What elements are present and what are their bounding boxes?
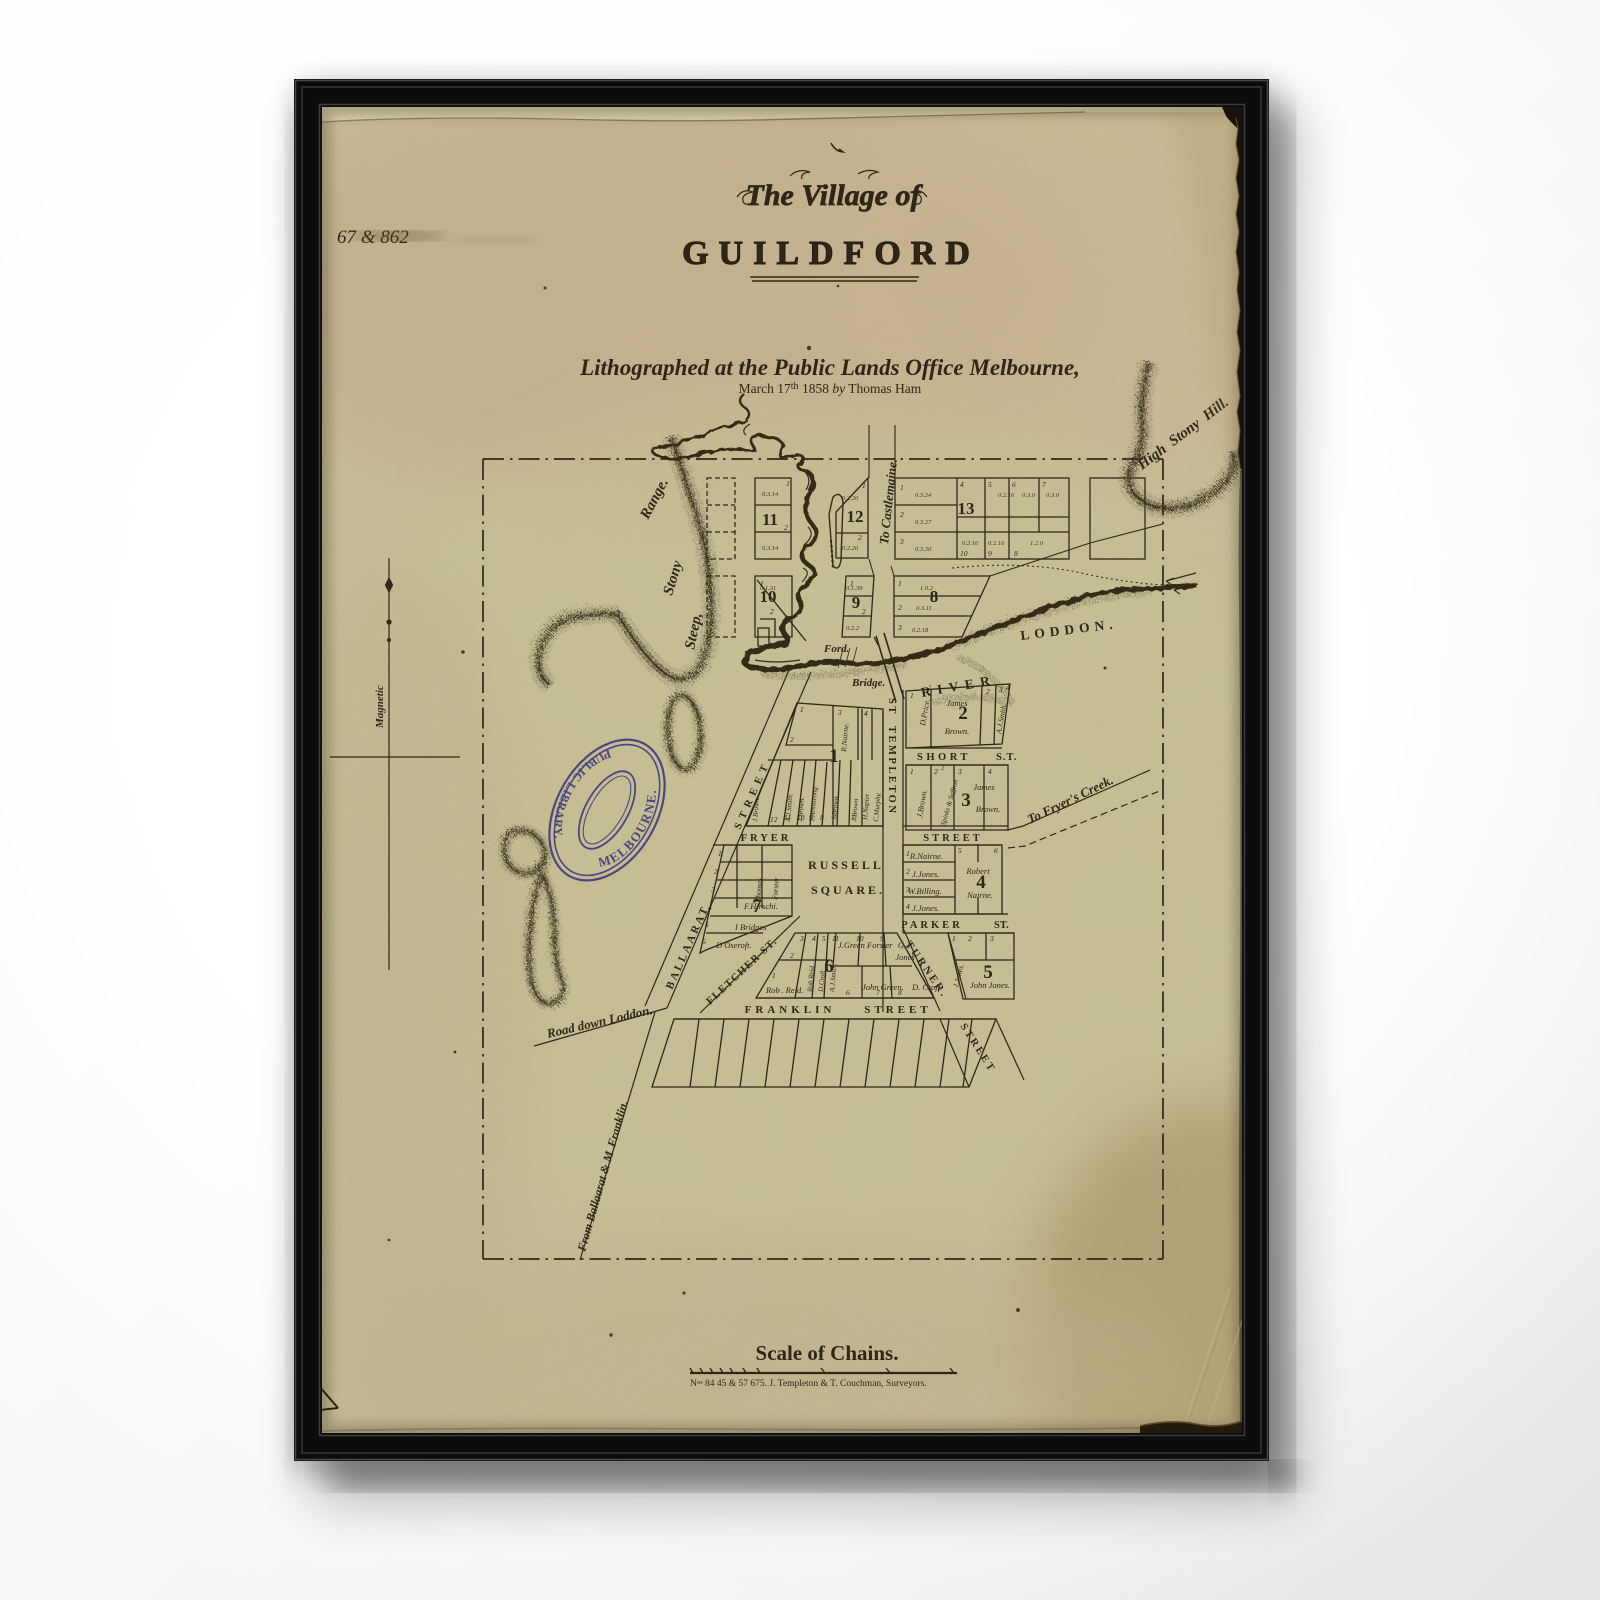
svg-text:SQUARE.: SQUARE. <box>811 883 885 897</box>
svg-text:3: 3 <box>998 685 1003 694</box>
svg-text:6: 6 <box>1012 480 1016 489</box>
svg-text:Lithographed at the Public Lan: Lithographed at the Public Lands Office … <box>579 355 1080 380</box>
svg-text:Brown.: Brown. <box>945 726 969 736</box>
svg-text:March 17th 1858 by Thomas Ham: March 17th 1858 by Thomas Ham <box>739 381 922 396</box>
svg-text:1.2.0: 1.2.0 <box>1030 540 1044 547</box>
svg-text:13: 13 <box>958 499 975 518</box>
svg-text:8: 8 <box>898 988 902 997</box>
svg-text:ST.: ST. <box>994 920 1009 931</box>
svg-text:G.J.: G.J. <box>898 940 912 950</box>
svg-text:Ford.: Ford. <box>823 643 849 655</box>
svg-text:9: 9 <box>988 549 992 558</box>
svg-text:4: 4 <box>906 902 910 911</box>
svg-text:1: 1 <box>900 483 904 492</box>
svg-text:3: 3 <box>899 537 904 546</box>
svg-text:0.3.30: 0.3.30 <box>915 546 932 553</box>
svg-text:8: 8 <box>1014 549 1018 558</box>
svg-text:2: 2 <box>934 767 938 776</box>
svg-text:RUSSELL: RUSSELL <box>808 858 884 872</box>
svg-text:4: 4 <box>864 709 868 718</box>
svg-text:2: 2 <box>900 510 904 519</box>
svg-text:12: 12 <box>847 507 864 526</box>
svg-text:1: 1 <box>760 579 764 588</box>
svg-text:5: 5 <box>958 846 962 855</box>
svg-text:D. Croft.: D. Croft. <box>911 982 942 992</box>
svg-text:7: 7 <box>832 813 836 822</box>
svg-text:7: 7 <box>1042 480 1046 489</box>
svg-text:SHORT: SHORT <box>917 752 971 763</box>
svg-text:0.3.14: 0.3.14 <box>762 491 779 498</box>
svg-text:0.3.0: 0.3.0 <box>1022 492 1036 499</box>
svg-text:0.2.2: 0.2.2 <box>846 625 860 632</box>
svg-text:10: 10 <box>960 549 968 558</box>
svg-text:F.Hirschi.: F.Hirschi. <box>743 901 778 911</box>
svg-text:3: 3 <box>799 934 804 943</box>
svg-text:1: 1 <box>862 481 866 490</box>
svg-text:2: 2 <box>906 867 910 876</box>
svg-text:0.2.20: 0.2.20 <box>842 545 859 552</box>
svg-text:1: 1 <box>772 971 776 980</box>
svg-text:3: 3 <box>897 623 902 632</box>
svg-text:11: 11 <box>762 510 778 529</box>
svg-text:5: 5 <box>705 920 709 929</box>
svg-text:11: 11 <box>784 813 791 822</box>
svg-text:2: 2 <box>968 934 972 943</box>
svg-text:1: 1 <box>952 934 956 943</box>
svg-text:James: James <box>946 698 968 708</box>
svg-text:STREET: STREET <box>923 833 982 844</box>
svg-text:11: 11 <box>832 934 839 943</box>
svg-text:1: 1 <box>910 767 914 776</box>
svg-text:0.1.39: 0.1.39 <box>846 585 863 592</box>
svg-text:4: 4 <box>812 934 816 943</box>
svg-text:4: 4 <box>988 767 992 776</box>
svg-text:TEMPLETON: TEMPLETON <box>886 726 897 815</box>
svg-text:Nairne.: Nairne. <box>966 890 993 900</box>
svg-text:1.0.2: 1.0.2 <box>920 585 934 592</box>
svg-text:0.3.11: 0.3.11 <box>916 605 932 612</box>
svg-text:2: 2 <box>862 607 866 616</box>
svg-text:2: 2 <box>986 687 990 696</box>
svg-text:6: 6 <box>852 813 856 822</box>
svg-text:W.Billing.: W.Billing. <box>908 886 942 896</box>
svg-text:ST: ST <box>886 698 897 716</box>
svg-text:10: 10 <box>797 813 805 822</box>
svg-text:I Bridges: I Bridges <box>734 922 767 932</box>
svg-text:9: 9 <box>852 593 861 612</box>
svg-text:1: 1 <box>829 746 839 767</box>
svg-text:0.2.20: 0.2.20 <box>842 495 859 502</box>
svg-text:John Jones.: John Jones. <box>970 980 1010 990</box>
svg-text:Magnetic: Magnetic <box>374 685 386 729</box>
svg-text:The Village of: The Village of <box>746 179 924 212</box>
svg-text:5: 5 <box>822 934 826 943</box>
svg-text:12: 12 <box>770 815 778 824</box>
svg-text:FRYER: FRYER <box>741 833 792 844</box>
svg-text:1: 1 <box>906 849 910 858</box>
svg-text:8: 8 <box>820 813 824 822</box>
svg-text:1: 1 <box>786 479 790 488</box>
svg-text:4: 4 <box>960 480 964 489</box>
svg-text:2: 2 <box>858 533 862 542</box>
svg-text:Brown.: Brown. <box>976 804 1000 814</box>
svg-text:3: 3 <box>961 790 971 811</box>
svg-text:R.Nairne.: R.Nairne. <box>909 851 943 861</box>
svg-text:2: 2 <box>790 735 794 744</box>
svg-text:4: 4 <box>1006 683 1010 692</box>
svg-text:6: 6 <box>702 937 706 946</box>
svg-text:9: 9 <box>809 813 813 822</box>
svg-text:PARKER: PARKER <box>901 920 963 931</box>
svg-text:Rob . Reid.: Rob . Reid. <box>765 985 803 995</box>
svg-text:0.2.16: 0.2.16 <box>962 540 979 547</box>
svg-text:Jones: Jones <box>895 952 915 962</box>
svg-text:1: 1 <box>910 691 914 700</box>
svg-text:J.Jones.: J.Jones. <box>912 869 939 879</box>
svg-text:3: 3 <box>837 708 842 717</box>
svg-text:4: 4 <box>708 903 712 912</box>
svg-text:Robert: Robert <box>965 866 990 876</box>
svg-text:J.Green Forster: J.Green Forster <box>838 940 893 950</box>
svg-text:Bridge.: Bridge. <box>851 677 885 689</box>
svg-text:James: James <box>973 782 995 792</box>
svg-text:1: 1 <box>800 705 804 714</box>
svg-text:1: 1 <box>898 579 902 588</box>
svg-text:10: 10 <box>856 934 864 943</box>
svg-text:Scale of Chains.: Scale of Chains. <box>756 1341 899 1365</box>
svg-text:2: 2 <box>898 603 902 612</box>
svg-text:STREET: STREET <box>864 1004 931 1016</box>
svg-text:2: 2 <box>770 607 774 616</box>
svg-text:0.2.16: 0.2.16 <box>988 540 1005 547</box>
svg-text:3: 3 <box>710 885 715 894</box>
svg-text:6: 6 <box>846 988 850 997</box>
svg-text:0.2.16: 0.2.16 <box>998 492 1015 499</box>
svg-text:2: 2 <box>790 951 794 960</box>
svg-text:6: 6 <box>994 846 998 855</box>
svg-text:0.3.14: 0.3.14 <box>762 545 779 552</box>
svg-text:3: 3 <box>957 767 962 776</box>
svg-text:0.2.18: 0.2.18 <box>912 627 929 634</box>
svg-text:FRANKLIN: FRANKLIN <box>745 1004 836 1016</box>
svg-text:2: 2 <box>714 867 718 876</box>
svg-text:2: 2 <box>784 523 788 532</box>
svg-text:9: 9 <box>880 934 884 943</box>
svg-text:1: 1 <box>850 579 854 588</box>
svg-text:0.3.27: 0.3.27 <box>915 519 932 526</box>
svg-text:3: 3 <box>905 885 910 894</box>
svg-text:D Oseroft.: D Oseroft. <box>715 940 752 950</box>
svg-text:7: 7 <box>876 988 880 997</box>
svg-text:S.T.: S.T. <box>996 752 1017 763</box>
svg-text:0.3.0: 0.3.0 <box>1046 492 1060 499</box>
svg-text:3: 3 <box>989 934 994 943</box>
svg-text:5: 5 <box>988 480 992 489</box>
svg-text:0.3.24: 0.3.24 <box>915 492 932 499</box>
svg-text:1: 1 <box>718 849 722 858</box>
svg-text:Nos 84 45 & 57 675. J. Templet: Nos 84 45 & 57 675. J. Templeton & T. Co… <box>690 1379 927 1389</box>
svg-text:GUILDFORD: GUILDFORD <box>682 235 980 272</box>
svg-text:J.Jones.: J.Jones. <box>912 903 939 913</box>
